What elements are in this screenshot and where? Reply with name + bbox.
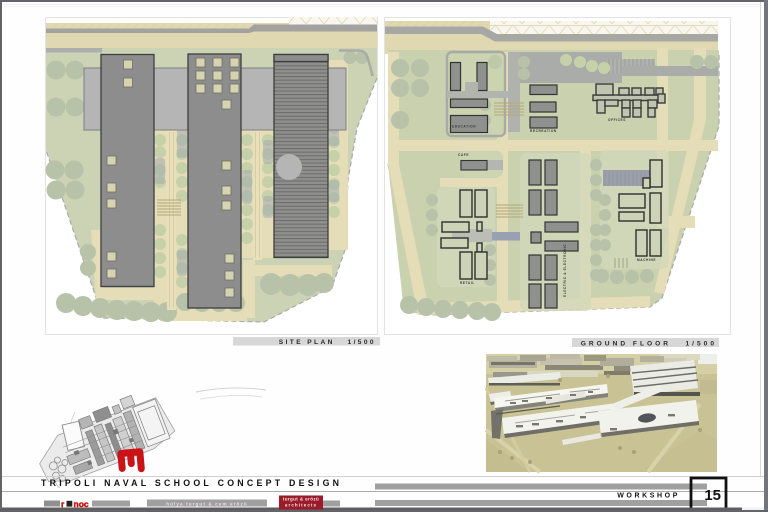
svg-text:RECREATION: RECREATION <box>530 129 557 133</box>
svg-text:CAFE: CAFE <box>458 153 469 157</box>
svg-text:GROUND FLOOR 1/500: GROUND FLOOR 1/500 <box>581 340 717 347</box>
svg-text:MACHINE: MACHINE <box>637 258 656 262</box>
svg-text:SITE PLAN 1/500: SITE PLAN 1/500 <box>279 339 376 346</box>
svg-text:turgut & erözü: turgut & erözü <box>283 497 319 502</box>
svg-text:OFFICES: OFFICES <box>608 118 626 122</box>
svg-text:architects: architects <box>285 503 317 508</box>
svg-text:ELECTRIC & ELECTRONIC: ELECTRIC & ELECTRONIC <box>563 244 567 297</box>
svg-text:TRIPOLI NAVAL SCHOOL CONCEPT D: TRIPOLI NAVAL SCHOOL CONCEPT DESIGN <box>41 478 342 488</box>
svg-text:RETAIL: RETAIL <box>460 281 475 285</box>
svg-text:EDUCATION: EDUCATION <box>452 125 476 129</box>
svg-text:15: 15 <box>704 487 721 504</box>
svg-text:WORKSHOP: WORKSHOP <box>617 493 680 500</box>
svg-text:hülya turgut & cem erözü: hülya turgut & cem erözü <box>166 501 248 506</box>
